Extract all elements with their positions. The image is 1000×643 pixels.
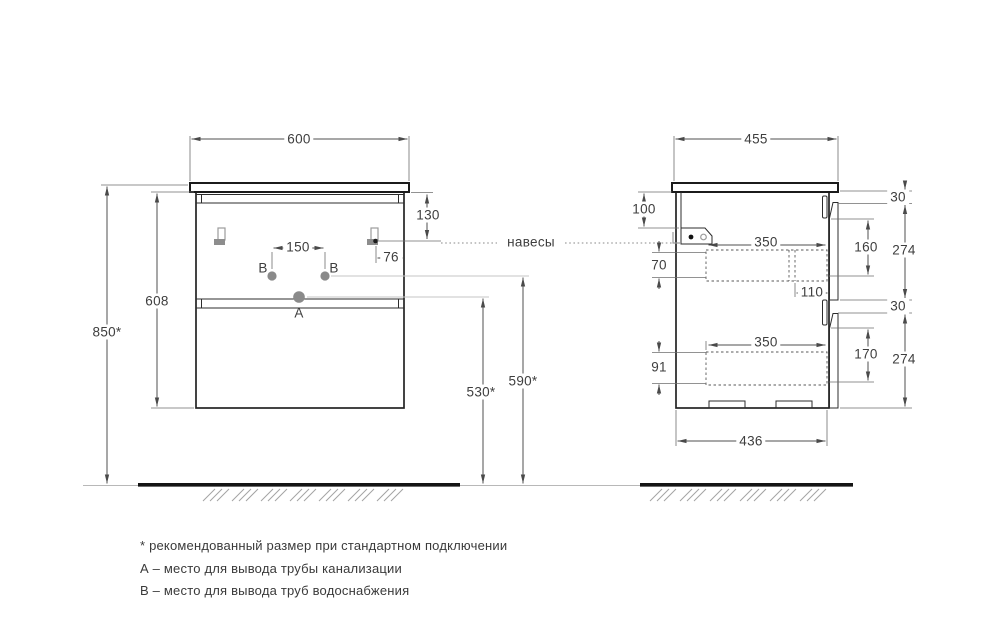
floor-hatching: [203, 489, 826, 501]
footnote-water-note: В – место для вывода труб водоснабжения: [140, 580, 507, 603]
footnotes: * рекомендованный размер при стандартном…: [140, 535, 507, 603]
dim-side-drawer1-box-side: 70: [648, 258, 670, 273]
dim-side-drawer2-front-inner: 170: [851, 347, 880, 362]
dim-front-top-to-floor: 850*: [90, 325, 125, 340]
label-drain-outlet: A: [294, 306, 303, 321]
dim-front-water-height: 590*: [506, 374, 541, 389]
dim-side-hanger-top-offset: 100: [629, 202, 658, 217]
footnote-drain-note: А – место для вывода трубы канализации: [140, 558, 507, 581]
footnote-recommended-size: * рекомендованный размер при стандартном…: [140, 535, 507, 558]
dim-side-bottom-depth: 436: [736, 434, 765, 449]
drawer-front-1-profile: [830, 203, 839, 301]
dim-front-outlet-spacing: 150: [283, 240, 312, 255]
floor-line: [83, 485, 853, 486]
drain-outlet-dot: [293, 291, 305, 303]
dim-side-drawer2-box-side: 91: [648, 360, 670, 375]
dim-side-top-depth: 455: [741, 132, 770, 147]
dim-side-drawer1-front-inner: 160: [851, 240, 880, 255]
technical-drawing-page: 600 130 150 76 608 850* 530* 590* B B A …: [0, 0, 1000, 643]
dim-front-body-height: 608: [142, 294, 171, 309]
dim-front-hanger-top-offset: 130: [413, 208, 442, 223]
dim-front-top-width: 600: [284, 132, 313, 147]
dim-front-drain-height: 530*: [464, 385, 499, 400]
dim-side-drawer1-front: 274: [889, 243, 918, 258]
water-outlet-left-dot: [267, 271, 276, 280]
dim-side-drawer2-depth: 350: [751, 335, 780, 350]
dim-side-middle-gap: 30: [887, 299, 909, 314]
dim-side-drawer1-depth: 350: [751, 235, 780, 250]
hangers-callout-label: навесы: [504, 235, 558, 250]
dim-side-drawer2-front: 274: [889, 352, 918, 367]
dim-side-top-gap: 30: [887, 190, 909, 205]
dim-front-hanger-side-offset: 76: [380, 250, 402, 265]
label-water-outlet-left: B: [258, 261, 267, 276]
water-outlet-right-dot: [320, 271, 329, 280]
dim-side-siphon-offset: 110: [798, 285, 826, 300]
label-water-outlet-right: B: [329, 261, 338, 276]
